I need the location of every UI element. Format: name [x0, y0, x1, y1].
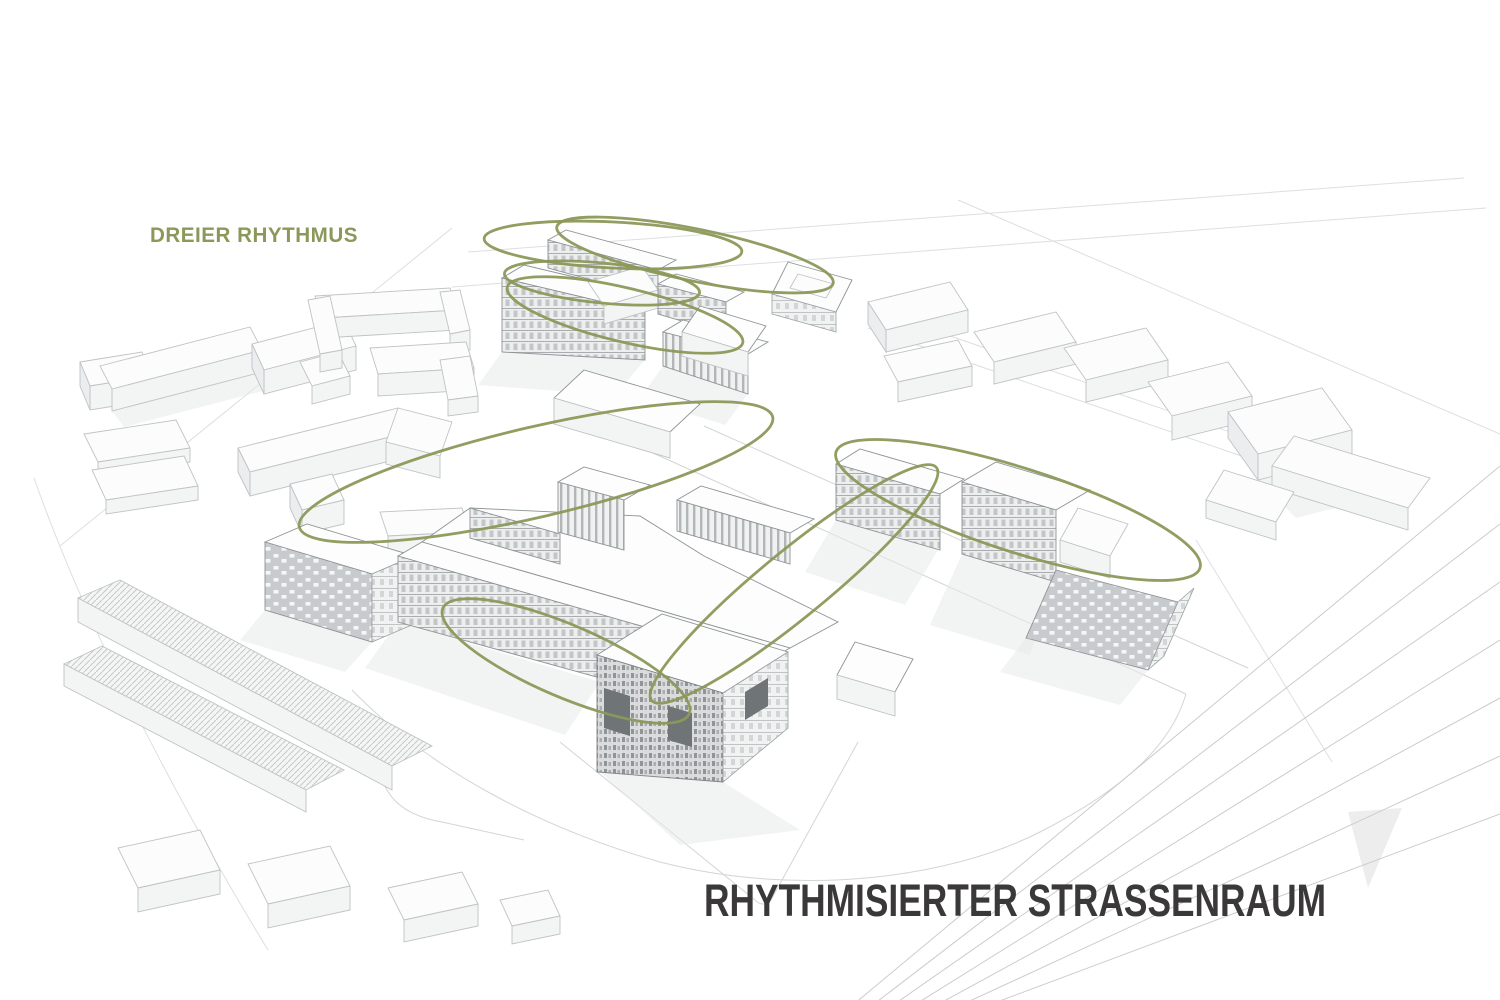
concept-label: DREIER RHYTHMUS: [150, 224, 358, 247]
context-building-l-shape: [238, 408, 452, 496]
campus-building-white-box: [837, 642, 913, 716]
parcel-line: [1196, 540, 1332, 762]
diagram-page: DREIER RHYTHMUS RHYTHMISIERTER STRASSENR…: [0, 0, 1500, 1000]
site-axonometric-diagram: DREIER RHYTHMUS RHYTHMISIERTER STRASSENR…: [0, 0, 1500, 1000]
context-building: [974, 312, 1076, 384]
context-building: [248, 846, 350, 928]
main-title: RHYTHMISIERTER STRASSENRAUM: [704, 875, 1326, 926]
plot-corner: [380, 766, 524, 840]
context-building: [118, 830, 220, 912]
context-building: [500, 890, 560, 944]
north-road-edge: [468, 178, 1464, 252]
ground-patch: [1348, 808, 1402, 888]
context-building: [370, 342, 478, 416]
context-building-plates: [84, 420, 198, 514]
context-building: [388, 872, 478, 942]
context-building: [1064, 328, 1168, 402]
campus-building-courtyard-east: [772, 262, 852, 332]
